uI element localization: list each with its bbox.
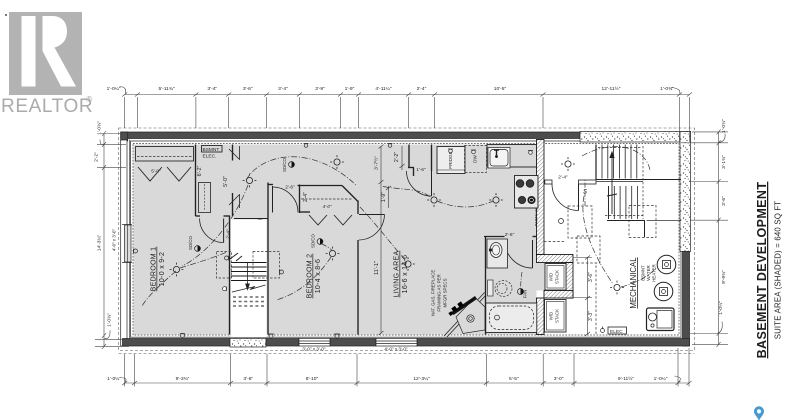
svg-text:NAT. GAS. FIREPLACE: NAT. GAS. FIREPLACE <box>431 270 436 317</box>
svg-text:12'-11½": 12'-11½" <box>602 85 621 92</box>
svg-text:5'-5": 5'-5" <box>509 376 519 382</box>
svg-text:4'-11¼": 4'-11¼" <box>375 86 391 92</box>
svg-text:1'-9": 1'-9" <box>381 192 387 202</box>
svg-text:BEDROOM 1: BEDROOM 1 <box>151 247 158 292</box>
svg-text:MFGR SPECS: MFGR SPECS <box>443 278 448 307</box>
svg-text:2'-4": 2'-4" <box>226 229 232 239</box>
svg-text:2'-6": 2'-6" <box>505 232 515 238</box>
svg-text:3'-0": 3'-0" <box>554 376 564 382</box>
svg-text:5'-0": 5'-0" <box>223 176 229 187</box>
svg-text:2'-4": 2'-4" <box>303 192 309 202</box>
svg-text:9'-11½": 9'-11½" <box>618 375 634 382</box>
svg-text:5'-11¾": 5'-11¾" <box>159 86 175 92</box>
svg-text:4'-0" x 3'-0": 4'-0" x 3'-0" <box>384 347 408 352</box>
svg-text:1'-9": 1'-9" <box>345 86 355 92</box>
svg-text:®: ® <box>86 94 93 104</box>
svg-text:5'-0": 5'-0" <box>151 169 161 175</box>
svg-text:2'-2": 2'-2" <box>394 152 400 162</box>
svg-text:1'-0¼": 1'-0¼" <box>107 376 121 382</box>
svg-text:3'-7½": 3'-7½" <box>373 156 380 170</box>
svg-text:12'-3¼": 12'-3¼" <box>413 376 430 382</box>
svg-text:ELEC.: ELEC. <box>203 154 217 160</box>
svg-text:ELEC: ELEC <box>610 329 623 335</box>
svg-text:REALTOR: REALTOR <box>1 96 93 117</box>
svg-text:1'-0¼": 1'-0¼" <box>654 376 668 382</box>
svg-text:1'-0¾": 1'-0¾" <box>660 86 674 92</box>
svg-text:11'-1": 11'-1" <box>374 261 380 275</box>
svg-text:SD/CO: SD/CO <box>311 233 316 247</box>
svg-text:6'-2": 6'-2" <box>197 166 203 177</box>
svg-text:STACK: STACK <box>555 270 560 284</box>
svg-text:4'-0": 4'-0" <box>323 204 332 209</box>
svg-text:SUITE AREA (SHADED) = 640 SQ F: SUITE AREA (SHADED) = 640 SQ FT <box>774 201 783 340</box>
svg-text:BASEMENT DEVELOPMENT: BASEMENT DEVELOPMENT <box>755 182 769 359</box>
svg-text:3'-6": 3'-6" <box>721 196 727 206</box>
svg-text:8'-10": 8'-10" <box>306 376 319 382</box>
svg-text:4'-0" x 3'-0": 4'-0" x 3'-0" <box>112 229 117 252</box>
svg-text:1'-0¾": 1'-0¾" <box>721 119 727 133</box>
svg-text:1'-0¾": 1'-0¾" <box>97 121 103 135</box>
svg-text:3'-4": 3'-4" <box>207 86 217 92</box>
svg-text:SD/CO: SD/CO <box>282 157 287 171</box>
svg-text:FRIDGE: FRIDGE <box>448 151 453 168</box>
svg-text:1'-0¾": 1'-0¾" <box>107 313 113 327</box>
svg-text:2'-2": 2'-2" <box>94 152 100 162</box>
svg-text:16-6 x 14-6: 16-6 x 14-6 <box>402 255 409 294</box>
svg-text:3'-6": 3'-6" <box>243 86 253 92</box>
svg-text:2'-4": 2'-4" <box>417 86 427 92</box>
svg-text:3'-4": 3'-4" <box>278 86 288 92</box>
svg-text:1'-0¼": 1'-0¼" <box>107 86 121 92</box>
svg-text:9'-3¾": 9'-3¾" <box>176 376 190 382</box>
svg-text:9'-9¾": 9'-9¾" <box>721 270 727 284</box>
svg-text:2'-6": 2'-6" <box>285 185 295 191</box>
svg-text:14'-3¾": 14'-3¾" <box>97 234 103 251</box>
svg-text:3'-0" x 3'-0": 3'-0" x 3'-0" <box>302 347 326 352</box>
svg-text:DW: DW <box>473 155 478 163</box>
svg-text:SD/CO: SD/CO <box>188 235 193 249</box>
svg-text:3'-6": 3'-6" <box>243 376 253 382</box>
svg-text:10'-5": 10'-5" <box>494 86 507 92</box>
svg-text:LIVING AREA: LIVING AREA <box>394 251 401 298</box>
svg-text:W/D: W/D <box>549 312 554 320</box>
svg-text:FRAMING AS PER: FRAMING AS PER <box>437 274 442 311</box>
svg-text:HEATER: HEATER <box>652 264 657 281</box>
svg-text:3'-3": 3'-3" <box>588 311 594 321</box>
svg-text:BEDROOM 2: BEDROOM 2 <box>307 254 314 299</box>
svg-text:FAN: FAN <box>523 290 528 299</box>
svg-text:2'-4": 2'-4" <box>558 175 568 181</box>
svg-text:BSMNT: BSMNT <box>203 147 220 153</box>
svg-text:1'-6": 1'-6" <box>416 167 426 172</box>
svg-text:STACK: STACK <box>555 309 560 323</box>
svg-text:3'-6": 3'-6" <box>588 272 594 282</box>
svg-text:W/D: W/D <box>549 273 554 281</box>
svg-text:3'-1¾": 3'-1¾" <box>721 155 727 169</box>
svg-text:S: S <box>583 190 587 196</box>
svg-text:3'-9": 3'-9" <box>315 86 325 92</box>
svg-text:1'-0¼": 1'-0¼" <box>718 301 724 315</box>
